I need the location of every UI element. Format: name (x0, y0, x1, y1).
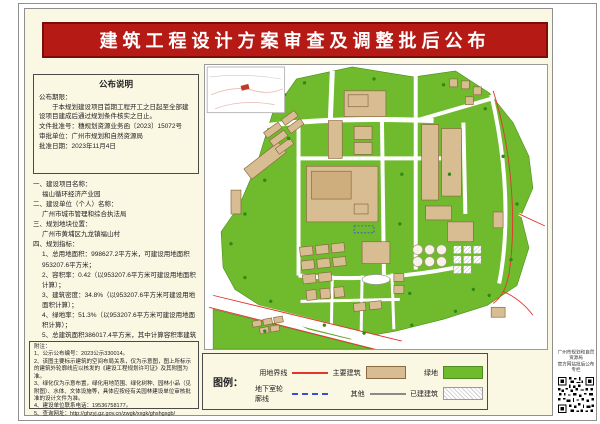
section-item: 二、建设单位（个人）名称： 广州市城市管理和综合执法局 (33, 200, 199, 220)
notice-approver: 审批单位：广州市规划和自然资源局 (39, 132, 193, 142)
note-item: 4、建设单位联系电话：19536758177。 (34, 403, 194, 410)
legend-label: 绿地 (424, 368, 438, 378)
gray-line-symbol (370, 393, 406, 395)
section-item: 四、规划指标： 1、总用地面积：998627.2平方米，可建设用地面积95320… (33, 240, 199, 351)
legend-item-basement-outline: 地下室轮廓线 (255, 383, 328, 404)
notice-doc-no: 文件批准号：穗规划资源业务函〔2023〕15072号 (39, 122, 193, 132)
tan-swatch-symbol (366, 366, 406, 379)
notice-box: 公布说明 公布期限： 于本规划建设项目首期工程开工之日起至全部建设项目建成后通过… (33, 74, 199, 174)
legend-item-other: 其他 (332, 383, 405, 404)
announcement-poster: 建筑工程设计方案审查及调整批后公布 公布说明 公布期限： 于本规划建设项目首期工… (0, 0, 600, 424)
note-item: 2、该图主要标示建筑的空间布局关系，仅为示意图，图上所标示的建筑外轮廓线应以核发… (34, 359, 194, 381)
legend-grid: 用地界线 主要建筑 绿地 地下室轮廓线 其他 已建建筑 (255, 362, 483, 404)
green-swatch-symbol (443, 366, 483, 379)
qr-code (558, 377, 594, 413)
locator-inset (207, 67, 284, 113)
section-heading: 四、规划指标： (33, 240, 199, 250)
section-item: 一、建设项目名称： 福山循环经济产业园 (33, 180, 199, 200)
legend-label: 地下室轮廓线 (255, 384, 287, 404)
legend-title: 图例： (213, 374, 243, 389)
legend-item-existing-building: 已建建筑 (410, 383, 483, 404)
note-item: 3、绿化仅为示意布置，绿化用地范围、绿化树种、园林小品（见附图）、水体、文体设施… (34, 381, 194, 403)
note-item: 1、公示公布编号：2023公示330014。 (34, 351, 194, 358)
section-heading: 一、建设项目名称： (33, 180, 199, 190)
legend-label: 已建建筑 (410, 389, 438, 399)
legend-label: 其他 (351, 389, 365, 399)
hatch-swatch-symbol (443, 387, 483, 400)
notice-period-text: 于本规划建设项目首期工程开工之日起至全部建设项目建成后通过规划条件核实之日止。 (39, 103, 193, 123)
page-title: 建筑工程设计方案审查及调整批后公布 (42, 22, 548, 58)
site-plan-drawing (205, 65, 547, 349)
qr-caption-line1: 广州市规划和自然资源局 (558, 350, 595, 362)
notice-period-label: 公布期限： (39, 93, 193, 103)
notes-box: 附注： 1、公示公布编号：2023公示330014。 2、该图主要标示建筑的空间… (29, 341, 199, 409)
section-item: 三、规划地块位置： 广州市黄埔区九龙镇福山村 (33, 220, 199, 240)
legend-box: 图例： 用地界线 主要建筑 绿地 地下室轮廓线 其他 (202, 353, 488, 410)
section-indicator: 2、容积率：0.42（以953207.6平方米可建设用地面积计算）； (33, 271, 199, 291)
site-plan-map: 比例尺：1:8000 总平面示意图 (204, 64, 548, 350)
section-heading: 二、建设单位（个人）名称： (33, 200, 199, 210)
section-indicator: 4、绿地率：51.3%（以953207.6平方米可建设用地面积计算）； (33, 311, 199, 331)
section-indicator: 1、总用地面积：998627.2平方米，可建设用地面积953207.6平方米； (33, 250, 199, 270)
qr-caption-line2: 官方网站批后公布专栏 (558, 362, 595, 374)
legend-label: 主要建筑 (333, 368, 361, 378)
note-item: 5、查询网址：http://ghzyj.gz.gov.cn/zwgk/xxgk/… (34, 411, 194, 418)
blue-dashed-symbol (292, 393, 328, 395)
section-body: 广州市城市管理和综合执法局 (33, 210, 199, 220)
oval-structure (362, 275, 390, 285)
notice-date: 批准日期：2023年11月4日 (39, 142, 193, 152)
legend-label: 用地界线 (259, 368, 287, 378)
legend-item-main-building: 主要建筑 (332, 362, 405, 383)
section-body: 广州市黄埔区九龙镇福山村 (33, 230, 199, 240)
section-body: 福山循环经济产业园 (33, 190, 199, 200)
section-heading: 三、规划地块位置： (33, 220, 199, 230)
red-line-symbol (292, 372, 328, 374)
legend-item-green-space: 绿地 (410, 362, 483, 383)
notice-box-title: 公布说明 (39, 78, 193, 91)
legend-item-site-boundary: 用地界线 (255, 362, 328, 383)
qr-block: 广州市规划和自然资源局 官方网站批后公布专栏 (556, 350, 596, 418)
section-indicator: 3、建筑密度：34.8%（以953207.6平方米可建设用地面积计算）； (33, 291, 199, 311)
